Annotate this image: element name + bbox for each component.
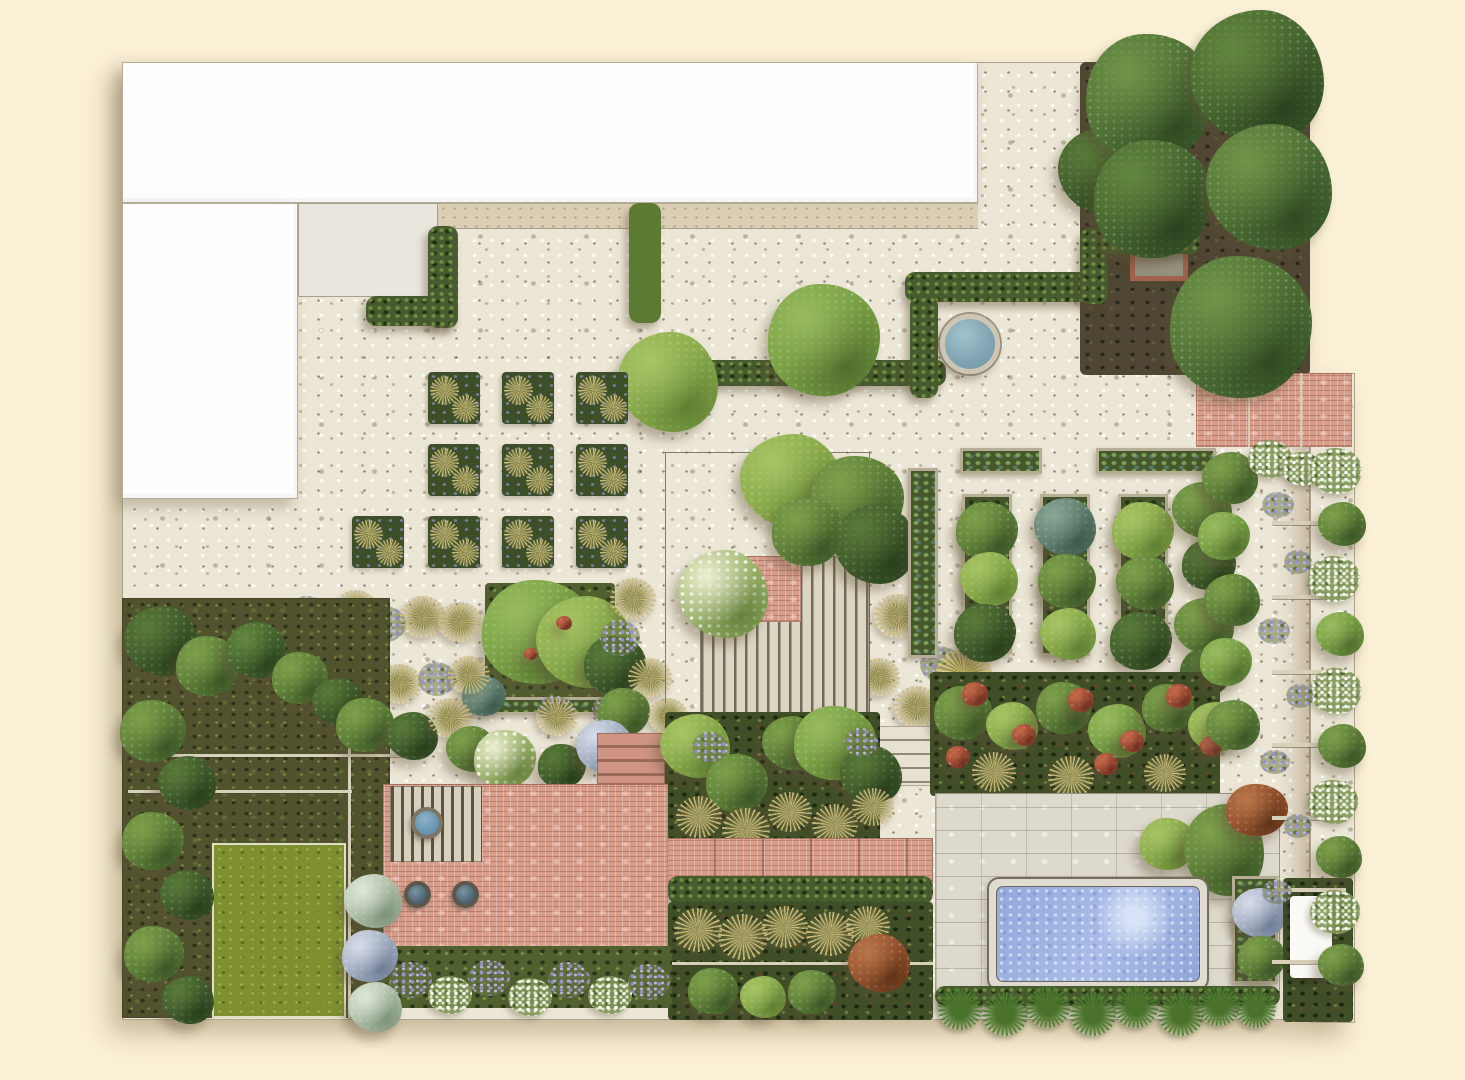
tree-canopy [1094,140,1212,258]
flower-accent [946,746,970,768]
green-grass-tuft [1158,992,1204,1036]
concrete-pad [298,203,438,297]
green-grass-tuft [1026,986,1070,1028]
shrub-ball [1318,724,1366,768]
silver-shrub [348,982,402,1032]
shrub-ball [1238,936,1286,980]
white-bloom [1308,556,1360,602]
bed-planting [1038,554,1096,608]
planter-grid-cell [576,444,628,496]
coping-band [438,203,978,229]
flower-accent [524,648,538,660]
planter-grid-cell [428,516,480,568]
bed-planting [954,604,1016,662]
hedge-pond-left [910,296,938,398]
green-grass-tuft [1236,990,1276,1028]
green-grass-tuft [1070,992,1116,1036]
trough-planter [960,448,1042,474]
white-bloom [428,976,472,1014]
white-bloom [1310,668,1362,714]
planter-grid-cell [576,516,628,568]
water-bowl [452,881,479,908]
lavender-clump [628,964,670,1000]
shrub-ball [1198,512,1250,560]
grass-tuft [972,752,1016,792]
planter-grid-cell [352,516,404,568]
grass-tuft [762,906,808,948]
border-shrub [336,698,394,752]
terrace-shrub [1226,784,1288,836]
green-grass-tuft [982,992,1028,1036]
flower-accent [1120,730,1144,752]
grass-tuft [1048,756,1094,798]
planter-grid-cell [502,372,554,424]
planter-grid-cell [576,372,628,424]
shrub-ball [788,970,836,1014]
hedge-pond-top [905,272,1107,302]
circular-pond [940,314,1000,374]
lavender-clump [1262,492,1294,518]
white-bloom [508,978,552,1016]
swimming-pool [987,877,1209,991]
flower-accent [556,616,572,630]
green-grass-tuft [938,988,982,1030]
white-bloom [1310,890,1360,934]
vertical-trough [908,468,938,658]
grass-tuft [448,656,490,694]
border-shrub [120,700,186,762]
silver-shrub [342,930,398,982]
lavender-clump [844,728,878,756]
grass-tuft [1144,754,1186,792]
water-bowl [404,881,431,908]
building-roof-main [122,62,978,203]
shrub-ball [740,976,786,1018]
border-shrub [124,926,184,982]
green-grass-tuft [1114,986,1158,1028]
tree-canopy [768,284,880,396]
grass-tuft [852,788,894,826]
flower-accent [1166,684,1192,708]
planter-grid-cell [502,444,554,496]
water-bowl [411,807,443,839]
planter-grid-cell [428,444,480,496]
planter-grid-cell [428,372,480,424]
flower-accent [962,682,988,706]
shrub-ball [1316,836,1362,878]
lavender-clump [1258,618,1290,644]
bed-planting [1112,502,1174,560]
hedge-horizontal [366,296,458,326]
flower-accent [1094,753,1118,775]
building-roof-wing [122,203,298,499]
grass-tuft [536,698,578,736]
brick-steps [597,733,665,784]
lavender-clump [600,620,640,656]
lavender-clump [692,732,728,762]
lavender-clump [548,962,590,998]
grass-tuft [674,908,722,952]
white-bloom [1310,448,1362,494]
grass-tuft [718,914,768,960]
border-shrub [122,812,184,870]
flower-accent [1068,688,1094,712]
bed-planting [1110,612,1172,670]
shrub-mass [772,498,844,566]
trough-planter [1096,448,1216,474]
brick-panel-joint [1300,373,1302,447]
grass-tuft [768,792,812,832]
ivy-strip [629,203,661,323]
tree-canopy [1170,256,1312,398]
shrub-ball [688,968,738,1014]
lavender-clump [1284,814,1312,838]
lawn [212,843,346,1018]
shrub-ball [1318,944,1364,986]
grass-tuft [610,578,656,620]
shrub-ball [1200,638,1252,686]
lavender-clump [1260,750,1290,774]
lavender-clump [1284,550,1312,574]
white-flowering-shrub [474,730,536,788]
white-bloom [588,976,632,1014]
shrub-ball [1318,502,1366,546]
garden-plan [0,0,1465,1080]
grass-tuft [438,602,482,642]
lavender-clump [468,960,510,996]
grass-tuft [676,796,722,838]
hedge-strip [668,876,933,904]
shrub-ball [1316,612,1364,656]
flower-accent [1012,724,1036,746]
green-grass-tuft [1198,986,1240,1026]
planter-grid-cell [502,516,554,568]
lavender-clump [1286,684,1314,708]
lavender-clump [1262,880,1292,904]
white-bloom [1308,780,1358,824]
